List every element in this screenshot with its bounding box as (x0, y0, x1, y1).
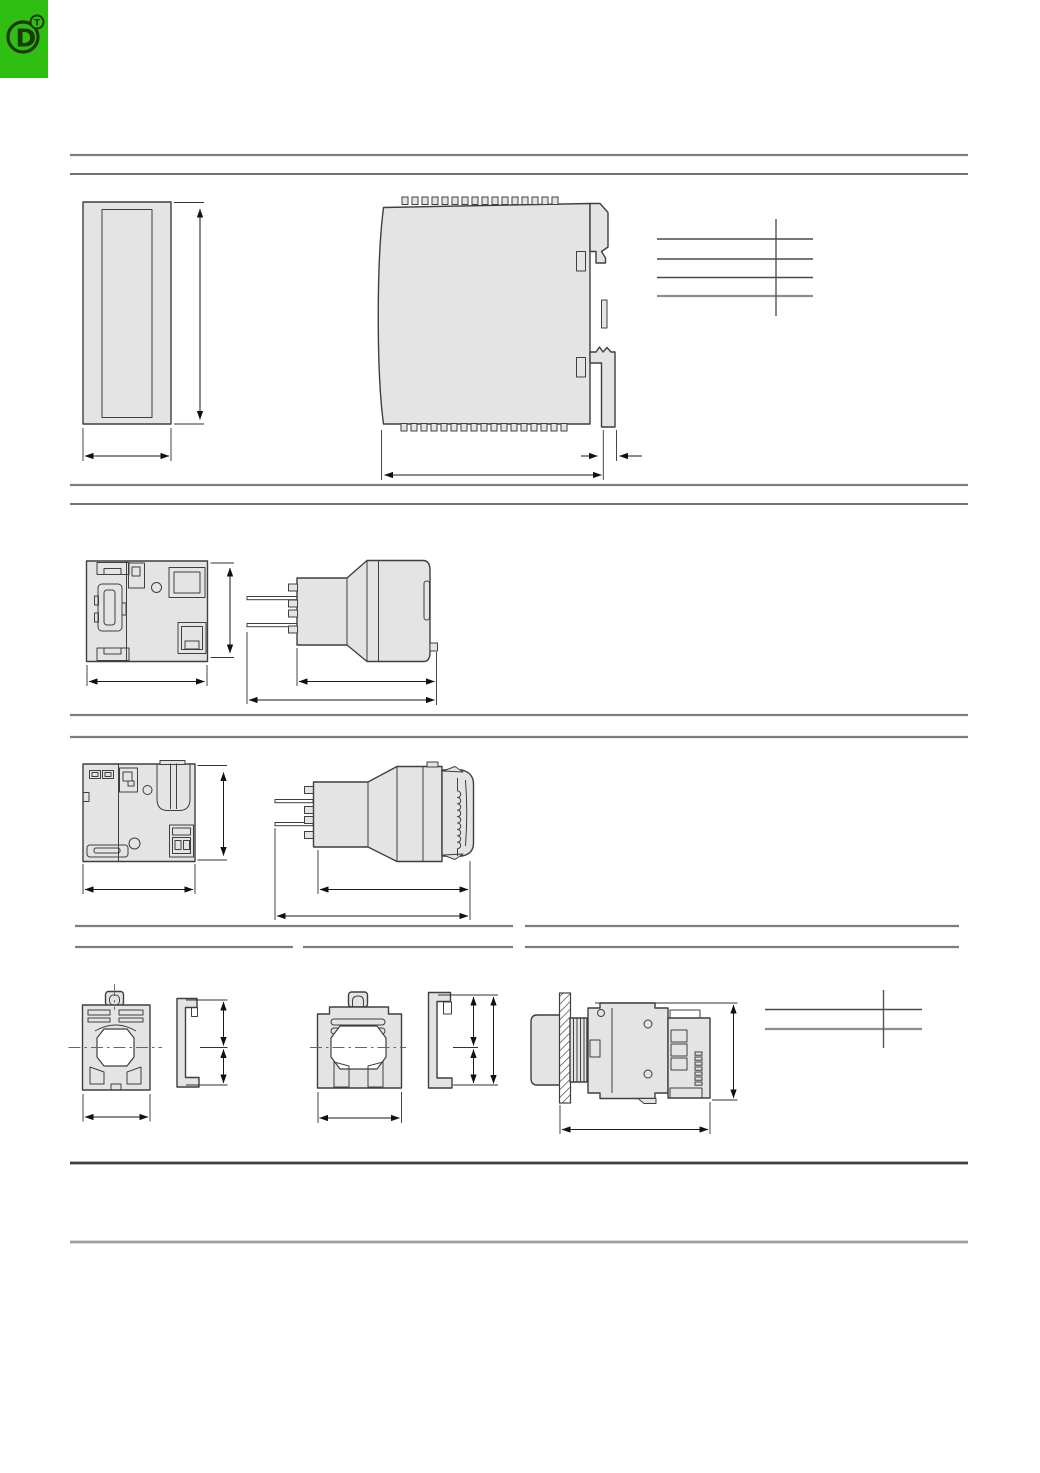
side-vent-slot-lower (577, 358, 586, 378)
s4-callout-table (765, 990, 922, 1048)
module-front-body (83, 202, 171, 424)
catalog-dimensions-page: D T (0, 0, 1040, 1473)
s1-side-view (378, 197, 642, 480)
s2-side-tab (430, 643, 438, 651)
din-clip-tab (602, 300, 608, 328)
s3-side-view (275, 762, 474, 920)
vent-teeth-bottom (401, 424, 567, 432)
s2-rear-view (87, 561, 235, 686)
din-clip-lower (590, 347, 615, 427)
s1-callout-table (657, 219, 813, 316)
section3-relay-module-clamp (83, 761, 474, 921)
b2-side-step (444, 1002, 452, 1014)
s3-clamp-claw-top (443, 767, 463, 773)
din-clip-upper (590, 204, 608, 264)
s3-rear-view (83, 761, 227, 895)
b1-side-profile (177, 999, 199, 1088)
pb-module-contact-teeth (695, 1052, 702, 1085)
s3-pin-upper (275, 800, 313, 803)
section4-contact-blocks (69, 984, 923, 1134)
brand-logo: D T (0, 0, 48, 78)
s3-clamp-claw-bottom (443, 854, 463, 860)
side-vent-slot-upper (577, 252, 586, 272)
s2-rear-body (87, 561, 208, 662)
pb-module-top-clamp (670, 1010, 700, 1018)
s2-hook-2 (289, 600, 298, 607)
s2-hook-4 (289, 626, 298, 633)
vent-teeth-top (402, 197, 558, 205)
s2-side-view (247, 561, 438, 706)
pb-mounting-panel (560, 993, 571, 1103)
b1-side-step (192, 1008, 198, 1017)
b2-top-tab (349, 992, 368, 1007)
s1-side-extension-lines (382, 430, 617, 480)
s2-side-body (297, 561, 430, 662)
s2-pin-upper (247, 597, 297, 600)
dimension-drawings-canvas: D T (0, 0, 1040, 1473)
s4-pushbutton-assembly (531, 993, 738, 1134)
s4-block2 (310, 992, 498, 1123)
s3-side-top-tab (427, 762, 438, 767)
section1-din-module (83, 197, 813, 480)
b1-side-extension-lines (186, 1000, 228, 1085)
b2-side-extension-lines (438, 995, 498, 1085)
pb-button-cap (531, 1015, 560, 1085)
s3-hook-4 (305, 832, 314, 839)
pb-bottom-hook (638, 1099, 656, 1104)
s2-hook-1 (289, 584, 298, 591)
logo-trademark-letter: T (34, 19, 41, 29)
s3-top-tab (160, 761, 185, 765)
module-side-body (378, 204, 590, 425)
s4-block1 (69, 984, 228, 1122)
s3-hook-2 (305, 807, 314, 814)
s3-hook-3 (305, 817, 314, 824)
s3-hook-1 (305, 787, 314, 794)
s2-hook-3 (289, 610, 298, 617)
s1-front-view (83, 202, 204, 461)
section2-relay-module (87, 561, 438, 706)
b2-side-profile (429, 993, 453, 1089)
